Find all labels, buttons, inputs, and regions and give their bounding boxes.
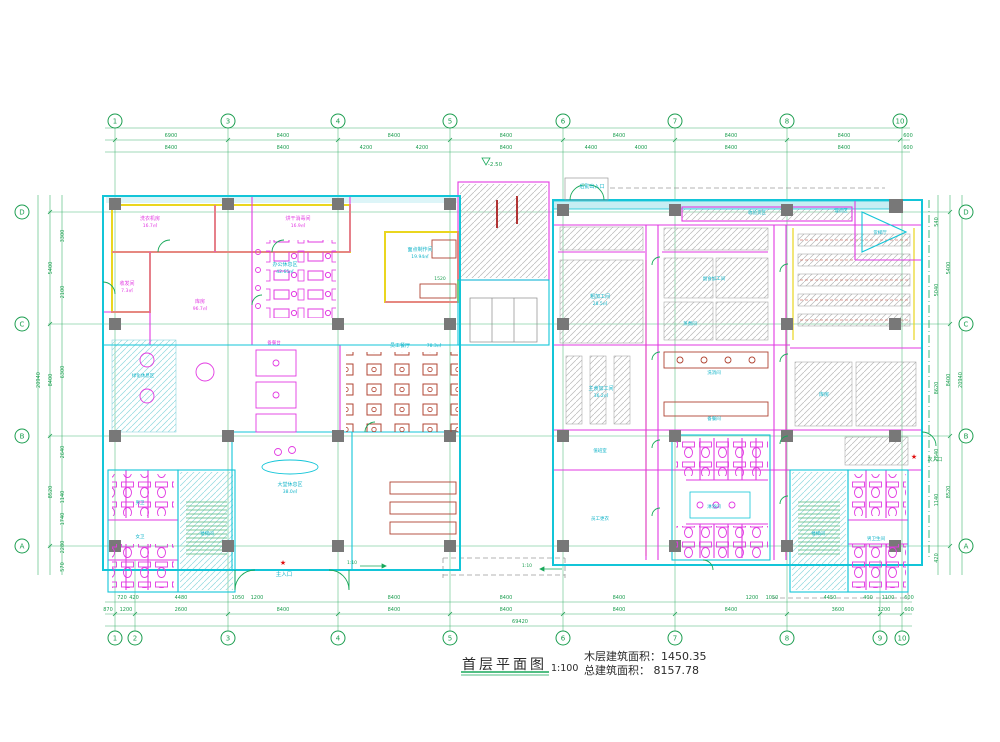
room-label: 办公休息区 [272,261,297,268]
grid-bubble-label: D [19,209,24,217]
dimension-text: 1140 [60,491,66,504]
dimension-text: 4400 [585,145,598,151]
dimension-text: 2640 [60,446,66,459]
room-label: 16.7㎡ [143,222,158,229]
dimension-text: 420 [129,595,139,601]
grid-bubble-label: 5 [448,635,452,643]
room-label: 淋浴间 [707,503,721,510]
dimension-text: 8520 [48,486,54,499]
dimension-text: 5400 [48,262,54,275]
room-label: 1:10 [522,563,532,569]
room-label: 1:10 [347,560,357,566]
dimension-text: 8400 [725,145,738,151]
grid-bubble-label: 3 [226,635,230,643]
grid-bubble-label: C [964,321,969,329]
dimension-text: 4200 [416,145,429,151]
room-label: 女卫 [136,533,145,540]
dimension-text: 8400 [277,145,290,151]
grid-bubble-label: D [963,209,968,217]
grid-bubble-label: C [20,321,25,329]
grid-bubble-label: A [964,543,969,551]
grid-bubble-label: 7 [673,635,677,643]
dimension-text: 8400 [725,607,738,613]
dimension-text: 1740 [60,513,66,526]
dimension-text: 420 [934,553,940,563]
dimension-text: 1100 [882,595,895,601]
room-label: 备餐台 [267,339,281,346]
room-label: 货梯厅 [873,229,887,236]
dimension-text: 1200 [251,595,264,601]
room-label: 备餐间 [707,415,721,422]
room-label: 后勤出入口 [579,183,604,190]
dimension-text: 3600 [832,607,845,613]
room-label: 次入口 [927,456,942,463]
room-label: 楼梯间 [200,530,214,537]
grid-bubble-label: 1 [113,635,117,643]
dimension-text: 870 [103,607,113,613]
room-label: 面点制作间 [407,246,432,253]
dimension-text: 1140 [934,494,940,507]
dimension-text: 1200 [878,607,891,613]
area-line-1: 木层建筑面积：1450.35 [584,649,707,663]
dimension-text: 600 [903,145,913,151]
dimension-text: 20940 [36,372,42,388]
dimension-text: 8400 [500,607,513,613]
dimension-text: 8400 [388,607,401,613]
room-label: 收发间 [119,280,134,287]
room-label: 值班室 [593,447,607,454]
dimension-text: 3300 [60,230,66,243]
drawing-scale: 1:100 [551,663,578,674]
room-label: 96.7㎡ [193,305,208,312]
dimension-text: 4000 [635,145,648,151]
dimension-text: 8400 [725,133,738,139]
dimension-text: 6300 [60,366,66,379]
dimension-text: 20940 [958,372,964,388]
dimension-text: 8400 [500,595,513,601]
grid-bubble-label: 10 [898,635,907,643]
grid-bubble-label: 9 [878,635,882,643]
dimension-text: 4200 [360,145,373,151]
dimension-text: 8400 [500,133,513,139]
floor-plan-canvas: 13456781012345678910DCBADCBA 69008400840… [0,0,1000,742]
room-label: 蒸煮间 [683,320,697,327]
dimension-text: 8400 [48,374,54,387]
dimension-text: 8400 [946,374,952,387]
grid-bubble-label: 10 [896,118,905,126]
dimension-text: 1050 [232,595,245,601]
dimension-text: 6900 [165,133,178,139]
dimension-text: 2280 [60,541,66,554]
room-label: 36.2㎡ [594,392,609,399]
room-label: 库房 [195,298,205,305]
dimension-text: 600 [903,133,913,139]
room-label: 1520 [434,276,446,282]
dimension-text: 8400 [500,145,513,151]
grid-bubble-label: A [20,543,25,551]
room-label: 库房 [819,391,829,398]
grid-bubble-label: 3 [226,118,230,126]
dimension-text: 8400 [613,133,626,139]
room-label: 收验货区 [748,209,766,216]
dimension-text: 8400 [277,133,290,139]
room-label: 16.9㎡ [291,222,306,229]
dimension-text: 1200 [120,607,133,613]
drawing-title: 首层平面图 [462,657,547,673]
room-label: 7.3㎡ [121,287,133,294]
room-label: 洗衣机房 [140,215,160,222]
room-label: 楼梯间 [811,530,825,537]
dimension-text: 600 [904,607,914,613]
grid-bubble-label: 7 [673,118,677,126]
dimension-text: 8400 [165,145,178,151]
grid-bubble-label: 2 [133,635,137,643]
grid-bubble-label: 5 [448,118,452,126]
dimension-text: 2100 [60,286,66,299]
room-label: 男卫生间 [867,535,885,542]
dimension-text: 2600 [175,607,188,613]
dimension-text: 570 [60,562,66,572]
entrance-star: ★ [911,453,917,461]
room-label: 洗消间 [707,369,721,376]
grid-bubble-label: 8 [785,118,789,126]
dimension-text: 1200 [746,595,759,601]
dimension-text: 720 [117,595,127,601]
grid-bubble-label: 6 [561,118,566,126]
room-label: 副食加工间 [703,275,726,282]
dimension-text: 1050 [766,595,779,601]
dimension-text: 8400 [388,133,401,139]
dimension-text: 8520 [946,486,952,499]
room-label: 28.5㎡ [593,300,608,307]
dimension-text: 4480 [175,595,188,601]
room-label: 大堂休息区 [277,481,302,488]
room-label: 绿化休息区 [132,372,155,379]
room-label: 38.0㎡ [283,488,298,495]
grid-bubble-label: 4 [336,118,341,126]
dimension-text: 400 [863,595,873,601]
dimension-text: 5400 [946,262,952,275]
room-label: 主入口 [276,570,293,578]
room-label: 员工更衣 [591,515,609,522]
dimension-text: 8400 [838,145,851,151]
grid-bubble-label: 8 [785,635,789,643]
grid-bubble-label: 6 [561,635,566,643]
dimension-text: 8400 [277,607,290,613]
dimension-text: 69420 [512,619,528,625]
dimension-text: 8620 [934,382,940,395]
grid-bubble-label: B [964,433,969,441]
room-label: 烘干消毒间 [285,215,310,222]
dimension-text: 8400 [613,607,626,613]
dimension-text: 8400 [838,133,851,139]
room-label: 男卫 [136,500,145,506]
grid-bubble-label: 4 [336,635,341,643]
entrance-star: ★ [280,559,286,567]
dimension-text: 8400 [388,595,401,601]
dimension-text: 5040 [934,284,940,297]
dimension-text: 540 [934,217,940,227]
dimension-text: 4450 [824,595,837,601]
grid-bubble-label: B [20,433,25,441]
hatch-zones [112,184,916,590]
title-block: 首层平面图 1:100 木层建筑面积：1450.35 总建筑面积： 8157.7… [462,649,707,677]
dimension-text: 8400 [613,595,626,601]
room-label: 员工餐厅 [390,342,410,349]
grid-bubble-label: 1 [113,118,117,126]
room-label: 19.94㎡ [411,253,429,260]
area-line-2: 总建筑面积： 8157.78 [584,663,699,677]
room-label: 主食加工间 [588,385,613,392]
room-label: 理货区 [834,207,848,214]
dimension-text: 600 [904,595,914,601]
room-label: 粗加工间 [590,293,610,300]
room-label: 42.65㎡ [276,268,294,275]
room-label: 78.3㎡ [427,342,442,349]
room-label: -2.50 [488,162,503,168]
